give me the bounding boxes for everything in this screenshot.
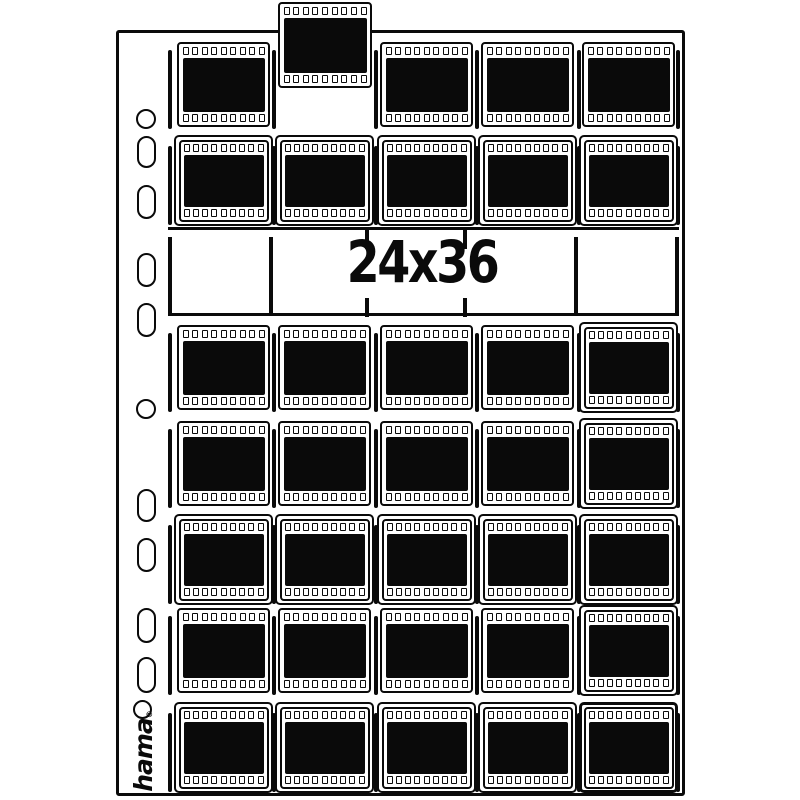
sprocket-hole xyxy=(635,679,641,688)
sprocket-hole xyxy=(249,426,255,435)
sprocket-hole xyxy=(462,680,468,689)
pocket-separator-bar xyxy=(475,616,479,695)
sprocket-hole xyxy=(258,711,264,720)
sprocket-hole xyxy=(332,7,338,16)
sprocket-hole xyxy=(645,47,651,56)
sprocket-hole xyxy=(424,776,430,785)
sprocket-hole xyxy=(589,614,595,623)
sprocket-hole xyxy=(322,7,328,16)
sprocket-hole xyxy=(414,209,420,218)
sprocket-hole xyxy=(506,144,512,153)
sprocket-hole xyxy=(506,680,512,689)
sprocket-hole xyxy=(543,523,549,532)
sprocket-row xyxy=(284,492,366,503)
sprocket-hole xyxy=(506,426,512,435)
sprocket-hole xyxy=(322,680,328,689)
negative-image-area xyxy=(184,722,264,774)
sprocket-hole xyxy=(563,613,569,622)
sprocket-hole xyxy=(525,711,531,720)
pocket-separator-bar xyxy=(475,333,479,412)
sprocket-hole xyxy=(340,209,346,218)
negative-image-area xyxy=(285,722,365,774)
sprocket-hole xyxy=(240,47,246,56)
sprocket-hole xyxy=(588,47,594,56)
sprocket-hole xyxy=(395,330,401,339)
sprocket-hole xyxy=(350,330,356,339)
sprocket-row xyxy=(284,74,367,85)
sprocket-row xyxy=(488,522,568,533)
sprocket-row xyxy=(285,208,365,219)
sprocket-hole xyxy=(616,396,622,405)
sprocket-hole xyxy=(635,331,641,340)
sprocket-hole xyxy=(515,776,521,785)
sprocket-hole xyxy=(653,776,659,785)
format-label: 24x36 xyxy=(297,231,546,293)
sprocket-hole xyxy=(349,144,355,153)
sprocket-hole xyxy=(361,7,367,16)
sprocket-hole xyxy=(626,711,632,720)
sprocket-hole xyxy=(360,397,366,406)
sprocket-hole xyxy=(350,493,356,502)
sprocket-hole xyxy=(497,776,503,785)
sprocket-hole xyxy=(635,47,641,56)
sprocket-hole xyxy=(534,47,540,56)
sprocket-hole xyxy=(405,426,411,435)
sprocket-hole xyxy=(589,144,595,153)
sprocket-hole xyxy=(626,427,632,436)
negative-image-area xyxy=(589,534,669,586)
punch-hole-oval xyxy=(137,489,156,522)
sprocket-hole xyxy=(635,144,641,153)
sprocket-hole xyxy=(534,330,540,339)
sprocket-hole xyxy=(312,680,318,689)
sprocket-hole xyxy=(553,114,559,123)
sprocket-row xyxy=(184,208,264,219)
sprocket-hole xyxy=(635,523,641,532)
sprocket-hole xyxy=(359,588,365,597)
band-frame-tick xyxy=(463,298,467,317)
sprocket-hole xyxy=(515,47,521,56)
sprocket-hole xyxy=(349,776,355,785)
sprocket-hole xyxy=(322,330,328,339)
sprocket-hole xyxy=(249,680,255,689)
sprocket-hole xyxy=(303,209,309,218)
sprocket-hole xyxy=(294,711,300,720)
sprocket-hole xyxy=(312,776,318,785)
sprocket-row xyxy=(487,396,569,407)
film-frame xyxy=(582,42,675,127)
sprocket-hole xyxy=(462,613,468,622)
film-frame xyxy=(280,140,370,222)
sprocket-hole xyxy=(183,680,189,689)
sprocket-hole xyxy=(414,776,420,785)
sprocket-hole xyxy=(312,523,318,532)
film-pocket xyxy=(579,605,678,696)
sprocket-hole xyxy=(239,711,245,720)
sprocket-hole xyxy=(543,776,549,785)
sprocket-hole xyxy=(487,114,493,123)
sprocket-hole xyxy=(616,114,622,123)
punch-hole-oval xyxy=(137,185,156,219)
sprocket-hole xyxy=(626,614,632,623)
sprocket-hole xyxy=(488,144,494,153)
sprocket-hole xyxy=(442,711,448,720)
sprocket-hole xyxy=(424,523,430,532)
sprocket-hole xyxy=(395,114,401,123)
sprocket-hole xyxy=(405,397,411,406)
sprocket-hole xyxy=(616,776,622,785)
sprocket-hole xyxy=(543,144,549,153)
sprocket-hole xyxy=(248,144,254,153)
sprocket-row xyxy=(183,612,265,623)
sprocket-hole xyxy=(644,523,650,532)
negative-image-area xyxy=(487,58,569,112)
sprocket-hole xyxy=(221,588,227,597)
sprocket-hole xyxy=(654,47,660,56)
sprocket-hole xyxy=(405,114,411,123)
sprocket-hole xyxy=(359,711,365,720)
sprocket-hole xyxy=(293,330,299,339)
sprocket-hole xyxy=(653,588,659,597)
sprocket-hole xyxy=(284,426,290,435)
sprocket-hole xyxy=(387,588,393,597)
sprocket-hole xyxy=(525,588,531,597)
sprocket-hole xyxy=(451,711,457,720)
film-pocket xyxy=(174,702,273,793)
sprocket-hole xyxy=(562,711,568,720)
sprocket-hole xyxy=(351,75,357,84)
sprocket-hole xyxy=(386,330,392,339)
film-frame xyxy=(280,707,370,789)
sprocket-hole xyxy=(626,396,632,405)
sprocket-hole xyxy=(202,680,208,689)
sprocket-hole xyxy=(230,397,236,406)
sprocket-hole xyxy=(443,680,449,689)
sprocket-hole xyxy=(424,426,430,435)
film-frame xyxy=(179,707,269,789)
sprocket-hole xyxy=(341,397,347,406)
sprocket-hole xyxy=(395,493,401,502)
sprocket-hole xyxy=(414,613,420,622)
sprocket-hole xyxy=(433,330,439,339)
sprocket-hole xyxy=(386,397,392,406)
sprocket-row xyxy=(387,208,467,219)
sprocket-hole xyxy=(424,493,430,502)
sprocket-row xyxy=(386,46,468,57)
sprocket-hole xyxy=(635,614,641,623)
sprocket-hole xyxy=(312,75,318,84)
sprocket-hole xyxy=(653,679,659,688)
sprocket-hole xyxy=(259,330,265,339)
sprocket-hole xyxy=(284,397,290,406)
sprocket-hole xyxy=(202,114,208,123)
film-frame xyxy=(380,42,473,127)
sprocket-hole xyxy=(294,588,300,597)
sprocket-hole xyxy=(515,209,521,218)
sprocket-hole xyxy=(506,776,512,785)
sprocket-hole xyxy=(496,47,502,56)
sprocket-hole xyxy=(230,711,236,720)
sprocket-hole xyxy=(563,426,569,435)
sprocket-hole xyxy=(202,397,208,406)
sprocket-hole xyxy=(598,711,604,720)
sprocket-hole xyxy=(230,209,236,218)
sprocket-hole xyxy=(331,523,337,532)
sprocket-hole xyxy=(293,493,299,502)
negative-image-area xyxy=(386,437,468,491)
sprocket-hole xyxy=(193,209,199,218)
sprocket-hole xyxy=(462,47,468,56)
sprocket-hole xyxy=(395,47,401,56)
sprocket-hole xyxy=(360,426,366,435)
sprocket-row xyxy=(284,612,366,623)
sprocket-hole xyxy=(534,588,540,597)
sprocket-hole xyxy=(506,493,512,502)
sprocket-row xyxy=(589,587,669,598)
sprocket-hole xyxy=(653,209,659,218)
sprocket-hole xyxy=(386,613,392,622)
film-frame xyxy=(278,325,371,410)
sprocket-hole xyxy=(626,144,632,153)
negative-image-area xyxy=(183,341,265,395)
film-frame xyxy=(177,608,270,693)
sprocket-hole xyxy=(525,493,531,502)
sprocket-hole xyxy=(589,331,595,340)
sprocket-hole xyxy=(183,613,189,622)
sprocket-hole xyxy=(396,776,402,785)
sprocket-hole xyxy=(644,427,650,436)
sprocket-row xyxy=(387,143,467,154)
sprocket-hole xyxy=(211,209,217,218)
sprocket-hole xyxy=(616,331,622,340)
sprocket-hole xyxy=(442,588,448,597)
sprocket-hole xyxy=(230,330,236,339)
sprocket-hole xyxy=(331,588,337,597)
sprocket-hole xyxy=(626,114,632,123)
sprocket-hole xyxy=(211,523,217,532)
pocket-separator-bar xyxy=(272,50,276,129)
sprocket-row xyxy=(184,522,264,533)
sprocket-hole xyxy=(544,493,550,502)
film-frame xyxy=(584,519,674,601)
sprocket-hole xyxy=(239,588,245,597)
sprocket-row xyxy=(589,613,669,624)
sprocket-hole xyxy=(303,711,309,720)
sprocket-hole xyxy=(451,523,457,532)
film-pocket xyxy=(275,135,374,226)
sprocket-hole xyxy=(249,613,255,622)
sprocket-hole xyxy=(626,47,632,56)
sprocket-hole xyxy=(193,711,199,720)
film-frame xyxy=(584,423,674,505)
negative-image-area xyxy=(284,437,366,491)
sprocket-hole xyxy=(221,426,227,435)
sprocket-hole xyxy=(462,330,468,339)
sprocket-hole xyxy=(303,144,309,153)
sprocket-hole xyxy=(221,397,227,406)
sprocket-hole xyxy=(331,776,337,785)
sprocket-hole xyxy=(239,776,245,785)
sprocket-hole xyxy=(487,493,493,502)
sprocket-hole xyxy=(534,613,540,622)
sprocket-hole xyxy=(331,493,337,502)
sprocket-hole xyxy=(414,397,420,406)
sprocket-hole xyxy=(193,776,199,785)
sprocket-hole xyxy=(341,680,347,689)
sprocket-hole xyxy=(322,711,328,720)
sprocket-hole xyxy=(589,492,595,501)
sprocket-hole xyxy=(488,209,494,218)
sprocket-hole xyxy=(193,588,199,597)
sprocket-hole xyxy=(598,776,604,785)
sprocket-hole xyxy=(424,330,430,339)
sprocket-hole xyxy=(312,493,318,502)
sprocket-hole xyxy=(616,679,622,688)
negative-image-area xyxy=(589,722,669,774)
sprocket-row xyxy=(488,143,568,154)
sprocket-hole xyxy=(303,588,309,597)
sprocket-hole xyxy=(525,613,531,622)
sprocket-hole xyxy=(405,588,411,597)
negative-image-area xyxy=(284,18,367,73)
pocket-separator-bar xyxy=(577,50,581,129)
sprocket-hole xyxy=(349,711,355,720)
pocket-separator-bar xyxy=(168,429,172,508)
sprocket-row xyxy=(589,330,669,341)
sprocket-hole xyxy=(525,114,531,123)
sprocket-hole xyxy=(293,7,299,16)
film-frame xyxy=(380,421,473,506)
sprocket-hole xyxy=(258,523,264,532)
sprocket-hole xyxy=(230,426,236,435)
sprocket-hole xyxy=(202,711,208,720)
sprocket-hole xyxy=(211,397,217,406)
sprocket-hole xyxy=(331,426,337,435)
negative-image-area xyxy=(387,155,467,207)
sprocket-hole xyxy=(240,330,246,339)
sprocket-hole xyxy=(350,426,356,435)
band-separator xyxy=(675,237,679,316)
negative-image-area xyxy=(589,155,669,207)
sprocket-hole xyxy=(607,711,613,720)
sprocket-hole xyxy=(452,47,458,56)
sprocket-hole xyxy=(635,492,641,501)
sprocket-hole xyxy=(607,114,613,123)
sprocket-hole xyxy=(259,680,265,689)
sprocket-hole xyxy=(312,588,318,597)
pocket-separator-bar xyxy=(168,146,172,225)
sprocket-hole xyxy=(240,114,246,123)
sprocket-hole xyxy=(552,711,558,720)
negative-image-area xyxy=(386,58,468,112)
sprocket-hole xyxy=(534,776,540,785)
sprocket-hole xyxy=(607,776,613,785)
film-pocket xyxy=(377,702,476,793)
sprocket-hole xyxy=(395,680,401,689)
sprocket-row xyxy=(183,46,265,57)
sprocket-hole xyxy=(359,144,365,153)
sprocket-hole xyxy=(433,209,439,218)
sprocket-row xyxy=(184,143,264,154)
sprocket-hole xyxy=(259,114,265,123)
sprocket-row xyxy=(183,425,265,436)
sprocket-hole xyxy=(258,144,264,153)
sprocket-row xyxy=(487,679,569,690)
sprocket-row xyxy=(386,679,468,690)
negative-image-area xyxy=(184,534,264,586)
sprocket-hole xyxy=(405,711,411,720)
sprocket-hole xyxy=(644,679,650,688)
pocket-separator-bar xyxy=(168,713,172,792)
sprocket-hole xyxy=(221,776,227,785)
sprocket-hole xyxy=(221,613,227,622)
sprocket-hole xyxy=(294,776,300,785)
film-frame xyxy=(278,608,371,693)
sprocket-hole xyxy=(331,680,337,689)
sprocket-hole xyxy=(183,114,189,123)
sprocket-hole xyxy=(433,114,439,123)
sprocket-hole xyxy=(183,493,189,502)
sprocket-hole xyxy=(663,144,669,153)
sprocket-hole xyxy=(644,396,650,405)
sprocket-hole xyxy=(598,144,604,153)
sprocket-hole xyxy=(663,614,669,623)
sprocket-hole xyxy=(211,680,217,689)
sprocket-hole xyxy=(303,493,309,502)
sprocket-hole xyxy=(258,588,264,597)
sprocket-hole xyxy=(496,613,502,622)
sprocket-hole xyxy=(350,680,356,689)
sprocket-hole xyxy=(322,493,328,502)
sprocket-hole xyxy=(312,209,318,218)
sprocket-hole xyxy=(221,711,227,720)
sprocket-hole xyxy=(515,426,521,435)
sprocket-hole xyxy=(653,523,659,532)
sprocket-row xyxy=(284,6,367,17)
sprocket-hole xyxy=(552,144,558,153)
film-frame xyxy=(382,707,472,789)
negative-image-area xyxy=(487,341,569,395)
sprocket-hole xyxy=(202,426,208,435)
sprocket-hole xyxy=(443,426,449,435)
sprocket-hole xyxy=(192,493,198,502)
sprocket-row xyxy=(183,329,265,340)
sprocket-hole xyxy=(202,209,208,218)
sprocket-hole xyxy=(534,680,540,689)
sprocket-hole xyxy=(202,493,208,502)
sprocket-hole xyxy=(350,397,356,406)
sprocket-hole xyxy=(386,680,392,689)
negative-image-area xyxy=(387,722,467,774)
sprocket-hole xyxy=(525,144,531,153)
sprocket-hole xyxy=(414,114,420,123)
sprocket-hole xyxy=(635,209,641,218)
film-frame xyxy=(179,140,269,222)
pocket-separator-bar xyxy=(374,333,378,412)
sprocket-hole xyxy=(239,209,245,218)
sprocket-hole xyxy=(424,711,430,720)
sprocket-hole xyxy=(183,426,189,435)
sprocket-hole xyxy=(534,523,540,532)
sprocket-hole xyxy=(442,776,448,785)
sprocket-hole xyxy=(360,493,366,502)
sprocket-hole xyxy=(451,776,457,785)
sprocket-hole xyxy=(414,523,420,532)
sprocket-hole xyxy=(544,330,550,339)
sprocket-hole xyxy=(386,47,392,56)
sprocket-hole xyxy=(259,426,265,435)
sprocket-hole xyxy=(534,144,540,153)
